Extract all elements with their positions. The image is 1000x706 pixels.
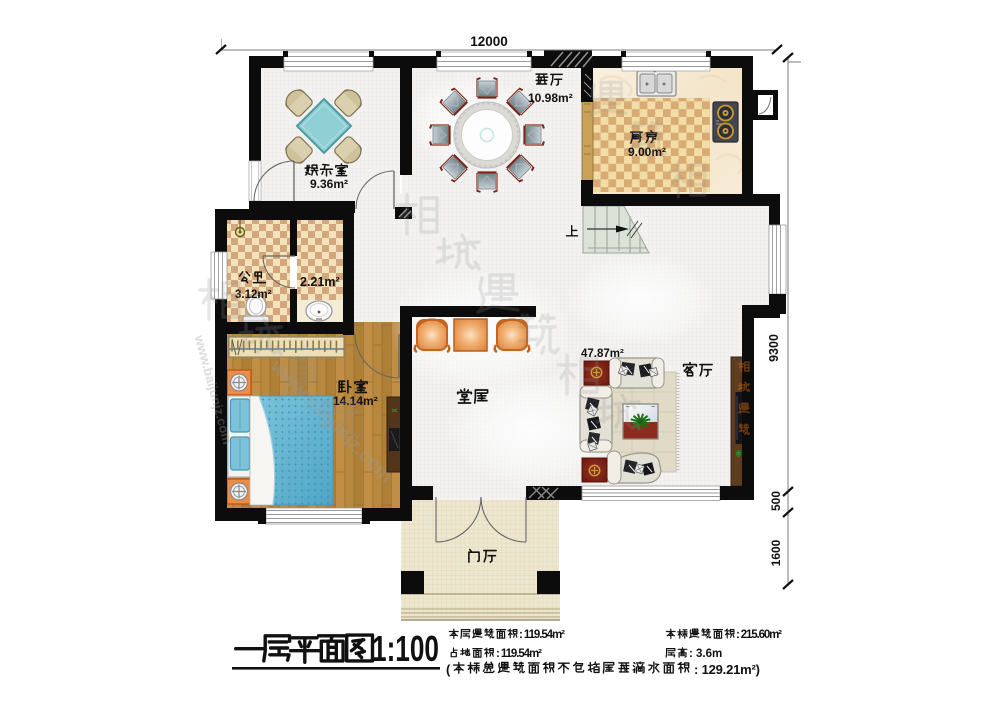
svg-text:1:100: 1:100 [372,628,439,669]
svg-text:9300: 9300 [767,334,781,362]
svg-text:500: 500 [769,491,783,511]
svg-text:: 215.60m²: : 215.60m² [736,629,782,641]
svg-text:: 119.54m²: : 119.54m² [496,648,542,660]
svg-text:: 3.6m: : 3.6m [689,648,722,660]
svg-text:(: ( [446,662,451,677]
svg-text:2.21m²: 2.21m² [300,275,340,289]
svg-text:: 119.54m²: : 119.54m² [519,629,565,641]
svg-text:: 129.21m²): : 129.21m²) [694,662,760,677]
svg-text:1600: 1600 [769,539,783,566]
svg-text:10.98m²: 10.98m² [528,91,573,105]
svg-text:9.36m²: 9.36m² [310,177,348,191]
svg-text:12000: 12000 [470,34,508,49]
svg-text:14.14m²: 14.14m² [333,394,378,408]
